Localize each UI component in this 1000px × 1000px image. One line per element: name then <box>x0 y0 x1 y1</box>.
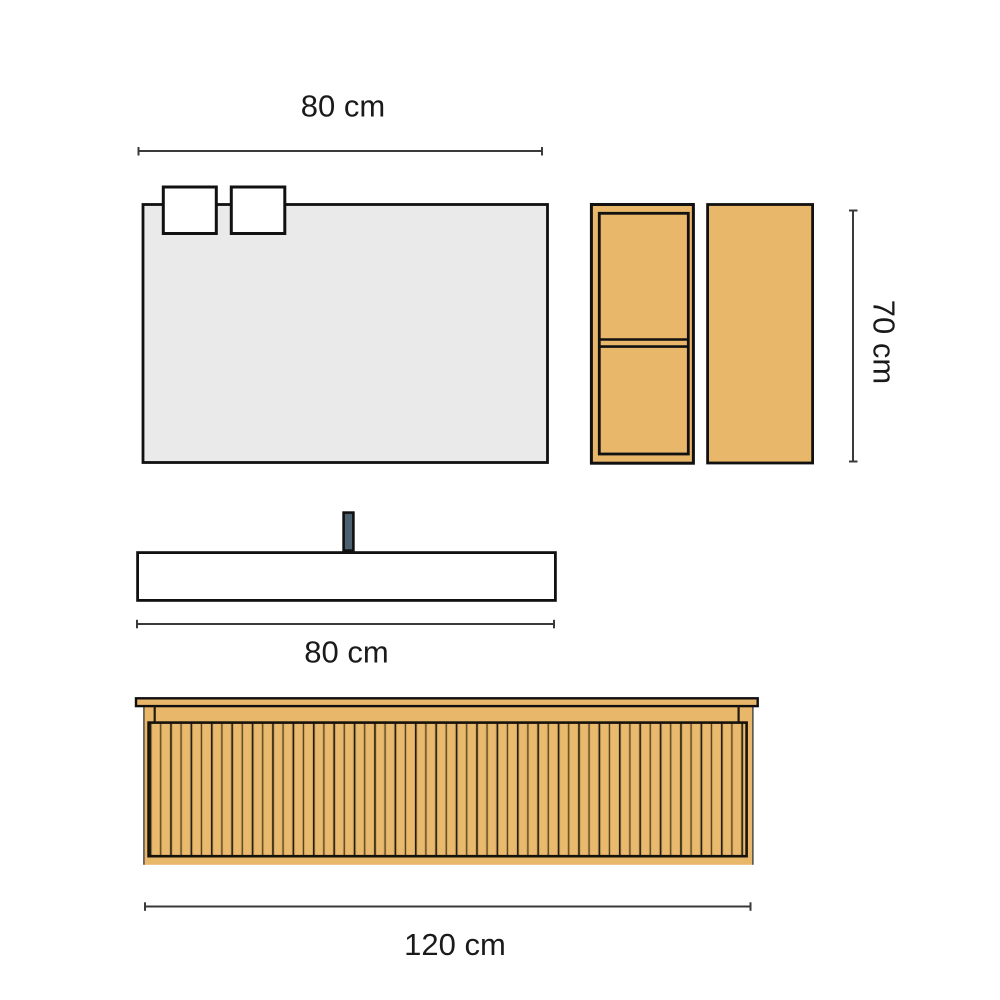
svg-text:80 cm: 80 cm <box>304 635 388 670</box>
svg-text:80 cm: 80 cm <box>301 89 385 124</box>
svg-text:70 cm: 70 cm <box>867 300 902 384</box>
svg-text:120 cm: 120 cm <box>404 927 506 962</box>
